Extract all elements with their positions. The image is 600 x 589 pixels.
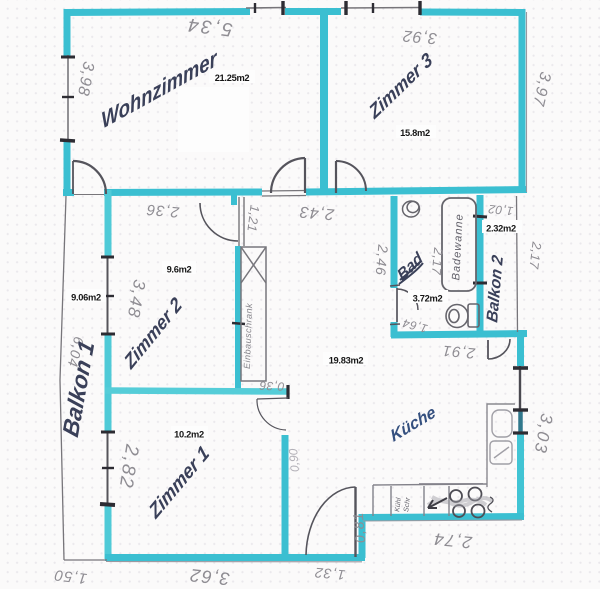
svg-text:1,50: 1,50	[53, 566, 88, 587]
svg-text:2,17: 2,17	[429, 246, 446, 276]
svg-text:Badewanne: Badewanne	[450, 213, 465, 281]
svg-text:0,36: 0,36	[259, 378, 285, 393]
svg-text:2.32m2: 2.32m2	[486, 224, 516, 234]
svg-text:Küche: Küche	[388, 402, 438, 446]
svg-text:15.8m2: 15.8m2	[400, 128, 430, 138]
svg-text:3,97: 3,97	[529, 70, 553, 108]
svg-text:0,90: 0,90	[286, 448, 302, 473]
svg-text:1,32: 1,32	[313, 565, 346, 584]
svg-text:2,43: 2,43	[298, 202, 335, 222]
svg-text:9.06m2: 9.06m2	[71, 293, 101, 303]
svg-text:Zimmer 1: Zimmer 1	[145, 442, 213, 524]
svg-text:1,21: 1,21	[244, 204, 262, 233]
svg-text:2,82: 2,82	[115, 442, 143, 491]
svg-text:Balkon 1: Balkon 1	[58, 337, 99, 439]
svg-text:3,48: 3,48	[124, 278, 149, 320]
svg-text:2,91: 2,91	[441, 342, 477, 362]
svg-text:3,98: 3,98	[74, 60, 97, 98]
svg-text:19.83m2: 19.83m2	[329, 356, 364, 366]
svg-text:Einbauschrank: Einbauschrank	[242, 303, 254, 369]
svg-text:Balkon 2: Balkon 2	[483, 254, 506, 325]
svg-text:0,81: 0,81	[350, 511, 369, 544]
svg-text:21.25m2: 21.25m2	[215, 73, 250, 83]
svg-text:Bad: Bad	[394, 248, 427, 285]
svg-text:3,62: 3,62	[188, 565, 231, 589]
svg-text:9.6m2: 9.6m2	[167, 265, 192, 275]
svg-text:3,03: 3,03	[530, 412, 556, 456]
svg-text:2,17: 2,17	[526, 240, 544, 270]
svg-text:2,46: 2,46	[373, 243, 392, 277]
svg-text:1,02: 1,02	[487, 202, 513, 218]
svg-text:5,34: 5,34	[185, 13, 234, 40]
svg-text:2,74: 2,74	[432, 529, 474, 552]
svg-text:Schr: Schr	[403, 497, 412, 513]
svg-text:Kühl: Kühl	[394, 497, 403, 512]
svg-text:3,92: 3,92	[401, 26, 437, 46]
svg-text:2,36: 2,36	[145, 201, 181, 221]
svg-text:10.2m2: 10.2m2	[174, 430, 204, 440]
svg-text:Zimmer 3: Zimmer 3	[365, 47, 436, 123]
svg-text:3.72m2: 3.72m2	[413, 294, 443, 304]
